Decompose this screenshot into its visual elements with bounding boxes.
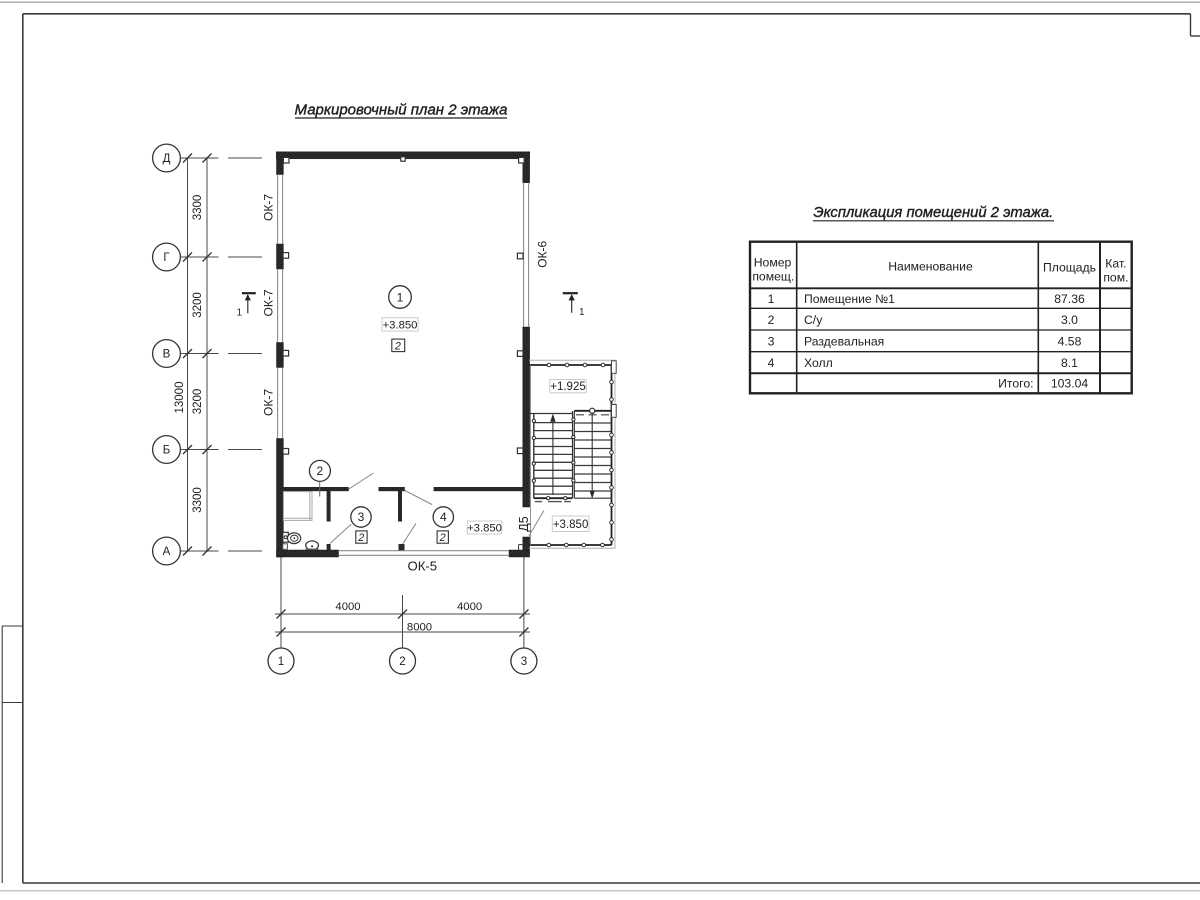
svg-text:8000: 8000 (407, 622, 432, 634)
svg-text:ОК-7: ОК-7 (262, 389, 276, 416)
svg-text:Д: Д (163, 153, 171, 165)
svg-text:Экспликация помещений 2 этажа.: Экспликация помещений 2 этажа. (813, 205, 1053, 221)
svg-text:Холл: Холл (804, 356, 833, 370)
svg-text:3: 3 (358, 510, 365, 524)
svg-text:4000: 4000 (457, 601, 482, 613)
svg-text:2: 2 (394, 341, 401, 353)
svg-text:ОК-5: ОК-5 (407, 558, 437, 573)
svg-text:1: 1 (237, 308, 243, 319)
svg-text:3200: 3200 (192, 389, 204, 415)
svg-text:2: 2 (317, 464, 324, 478)
svg-text:Помещение №1: Помещение №1 (804, 292, 895, 306)
svg-text:помещ.: помещ. (752, 270, 794, 284)
svg-text:4.58: 4.58 (1058, 335, 1082, 349)
svg-text:ОК-7: ОК-7 (262, 289, 276, 316)
svg-text:ОК-6: ОК-6 (535, 240, 549, 267)
svg-text:С/у: С/у (804, 313, 823, 327)
svg-text:1: 1 (768, 292, 775, 306)
svg-text:2: 2 (357, 532, 364, 544)
svg-text:Номер: Номер (754, 256, 792, 270)
svg-text:1: 1 (579, 307, 585, 318)
svg-text:Площадь: Площадь (1043, 261, 1096, 275)
svg-text:2: 2 (439, 532, 446, 544)
svg-text:4: 4 (440, 510, 447, 524)
svg-text:4: 4 (768, 356, 775, 370)
svg-text:4000: 4000 (335, 601, 360, 613)
svg-text:3200: 3200 (192, 292, 204, 318)
svg-text:1: 1 (397, 290, 404, 304)
svg-text:2: 2 (399, 656, 405, 668)
svg-text:1: 1 (278, 656, 284, 668)
svg-text:13000: 13000 (174, 382, 186, 414)
svg-text:Раздевальная: Раздевальная (804, 335, 884, 349)
svg-text:Б: Б (163, 445, 171, 457)
svg-text:В: В (163, 349, 171, 361)
svg-text:3: 3 (521, 656, 527, 668)
svg-text:ОК-7: ОК-7 (262, 194, 276, 221)
svg-text:8.1: 8.1 (1061, 356, 1078, 370)
svg-text:+3.850: +3.850 (553, 519, 589, 531)
svg-text:Кат.: Кат. (1105, 257, 1126, 271)
svg-text:пом.: пом. (1103, 271, 1128, 285)
svg-text:3: 3 (768, 335, 775, 349)
svg-text:Д5: Д5 (517, 516, 531, 531)
svg-text:Г: Г (163, 252, 170, 264)
svg-text:Наименование: Наименование (888, 260, 973, 274)
svg-text:+3.850: +3.850 (467, 522, 502, 534)
svg-text:3.0: 3.0 (1061, 313, 1078, 327)
svg-text:3300: 3300 (192, 487, 204, 513)
svg-text:2: 2 (768, 313, 775, 327)
svg-text:+3.850: +3.850 (383, 320, 418, 332)
svg-text:Итого:: Итого: (998, 376, 1033, 390)
svg-text:103.04: 103.04 (1051, 376, 1088, 390)
svg-text:+1.925: +1.925 (550, 381, 586, 393)
svg-text:3300: 3300 (192, 195, 204, 221)
svg-text:А: А (163, 546, 171, 558)
svg-text:Маркировочный план 2 этажа: Маркировочный план 2 этажа (295, 102, 508, 119)
svg-text:87.36: 87.36 (1054, 292, 1085, 306)
